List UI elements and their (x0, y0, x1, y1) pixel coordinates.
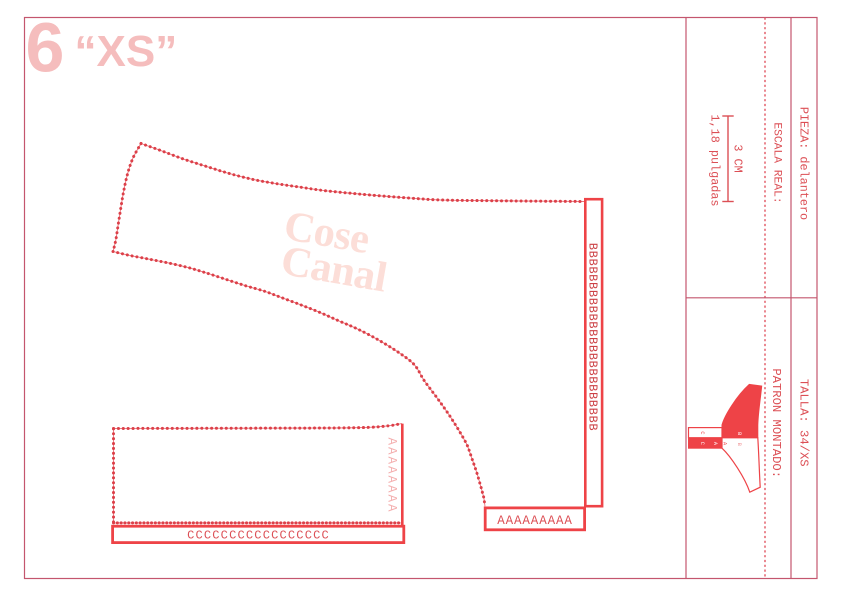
svg-text:B: B (736, 443, 742, 446)
svg-text:6: 6 (26, 9, 65, 87)
svg-text:“XS”: “XS” (75, 27, 178, 76)
svg-text:1,18 pulgadas: 1,18 pulgadas (707, 114, 721, 206)
svg-text:B: B (736, 432, 742, 435)
svg-text:TALLA: 34/XS: TALLA: 34/XS (797, 379, 811, 467)
svg-text:AAAAAAAAA: AAAAAAAAA (497, 514, 573, 528)
svg-text:BBBBBBBBBBBBBBBBBBBBBBBB: BBBBBBBBBBBBBBBBBBBBBBBB (585, 243, 599, 431)
svg-text:PIEZA: delantero: PIEZA: delantero (797, 107, 811, 220)
svg-text:C: C (699, 442, 705, 445)
svg-text:PATRON MONTADO:: PATRON MONTADO: (769, 368, 783, 478)
svg-text:CCCCCCCCCCCCCCCCC: CCCCCCCCCCCCCCCCC (187, 528, 330, 542)
svg-text:ESCALA REAL:: ESCALA REAL: (770, 122, 782, 203)
svg-text:3 CM: 3 CM (730, 144, 744, 172)
svg-text:C: C (699, 431, 705, 434)
svg-text:Canal: Canal (277, 237, 390, 302)
svg-text:AAAAAAAA: AAAAAAAA (385, 437, 399, 513)
